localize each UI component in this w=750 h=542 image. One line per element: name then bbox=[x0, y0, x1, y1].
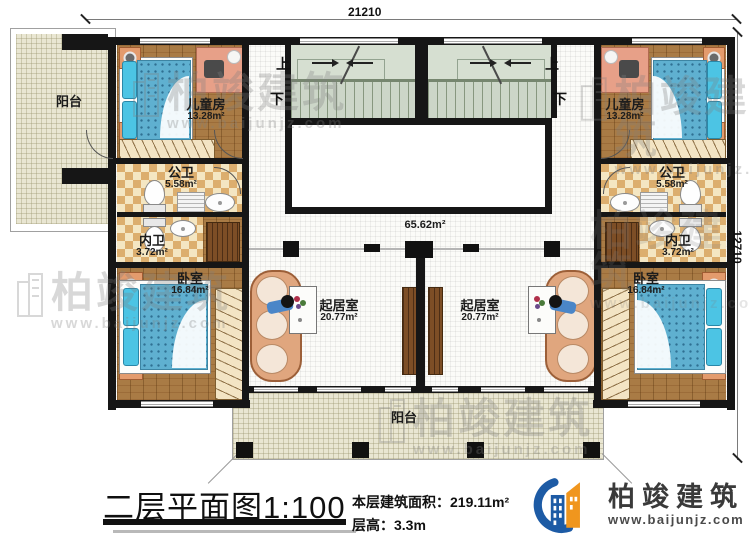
window bbox=[628, 401, 700, 407]
toilet bbox=[144, 180, 165, 206]
room-label-living-left: 起居室 20.77m² bbox=[319, 299, 358, 324]
room-label-inner-bath-right: 内卫 3.72m² bbox=[662, 234, 694, 259]
room-name: 儿童房 bbox=[186, 98, 225, 112]
room-area: 20.77m² bbox=[460, 313, 499, 324]
room-name: 内卫 bbox=[662, 234, 694, 248]
perspective-line bbox=[208, 453, 238, 483]
sofa-cushion bbox=[557, 344, 589, 374]
floor-plan-canvas: 上 下 上 下 bbox=[0, 0, 750, 542]
person-head bbox=[549, 295, 562, 308]
stair-treads bbox=[291, 82, 415, 118]
wardrobe bbox=[119, 139, 215, 159]
desk-lamp bbox=[604, 50, 618, 64]
sink bbox=[610, 193, 640, 212]
wall-stub bbox=[62, 168, 108, 184]
company-logo: 柏竣建筑 www.baijunjz.com bbox=[518, 474, 744, 536]
wall-right-corridor bbox=[594, 45, 601, 400]
room-label-public-bath-left: 公卫 5.58m² bbox=[165, 166, 197, 191]
window bbox=[632, 38, 702, 44]
window bbox=[300, 38, 398, 44]
sofa-cushion bbox=[557, 310, 589, 340]
room-name: 儿童房 bbox=[605, 98, 644, 112]
room-name: 阳台 bbox=[391, 411, 417, 425]
hall-area-value: 65.62m² bbox=[405, 220, 446, 232]
room-area: 16.84m² bbox=[627, 286, 664, 297]
room-label-balcony-bottom: 阳台 bbox=[391, 411, 417, 425]
room-area: 3.72m² bbox=[136, 248, 168, 259]
window bbox=[385, 387, 411, 392]
sink bbox=[205, 193, 235, 212]
pillow bbox=[706, 328, 722, 366]
room-label-inner-bath-left: 内卫 3.72m² bbox=[136, 234, 168, 259]
column bbox=[236, 442, 253, 458]
door-panel-left bbox=[402, 287, 417, 375]
shower-unit bbox=[177, 192, 205, 213]
pillow bbox=[123, 328, 139, 366]
desk-lamp bbox=[227, 50, 241, 64]
room-name: 起居室 bbox=[460, 299, 499, 313]
pillow bbox=[123, 288, 139, 326]
hall-area-label: 65.62m² bbox=[405, 220, 446, 232]
window bbox=[140, 38, 210, 44]
room-label-living-right: 起居室 20.77m² bbox=[460, 299, 499, 324]
wall-stair-center bbox=[415, 45, 428, 118]
computer-monitor bbox=[619, 60, 639, 78]
room-area: 20.77m² bbox=[319, 313, 358, 324]
title-underline-shadow bbox=[113, 530, 356, 533]
room-area: 5.58m² bbox=[165, 180, 197, 191]
stair-arrow-head bbox=[490, 59, 497, 67]
stair-up-label-right: 上 bbox=[545, 54, 559, 74]
room-area: 3.72m² bbox=[662, 248, 694, 259]
pillow bbox=[122, 61, 137, 99]
stair-down-label-left: 下 bbox=[270, 89, 284, 109]
wall-children-left-bottom bbox=[108, 158, 249, 164]
stair-arrow bbox=[312, 62, 332, 64]
room-label-bedroom-right: 卧室 16.84m² bbox=[627, 272, 664, 297]
wall-bath-divider-left bbox=[117, 212, 242, 217]
room-area: 13.28m² bbox=[186, 112, 225, 123]
wardrobe bbox=[630, 139, 726, 159]
room-label-bedroom-left: 卧室 16.84m² bbox=[171, 272, 208, 297]
table-item bbox=[537, 318, 541, 322]
wall-stub bbox=[62, 34, 108, 50]
person-head bbox=[281, 295, 294, 308]
table-item bbox=[298, 318, 302, 322]
room-label-public-bath-right: 公卫 5.58m² bbox=[656, 166, 688, 191]
computer-monitor bbox=[204, 60, 224, 78]
stair-treads bbox=[428, 82, 551, 118]
stair-arrow bbox=[353, 62, 373, 64]
room-name: 内卫 bbox=[136, 234, 168, 248]
room-name: 公卫 bbox=[165, 166, 197, 180]
wall-living-divider bbox=[416, 249, 425, 386]
shower-unit bbox=[640, 192, 668, 213]
stair-down-label-right: 下 bbox=[553, 89, 567, 109]
plant bbox=[294, 296, 300, 302]
stair-arrow-head bbox=[346, 59, 353, 67]
pillow bbox=[707, 101, 722, 139]
column bbox=[463, 244, 479, 252]
door-panel-right bbox=[428, 287, 443, 375]
floor-height-text: 层高：3.3m bbox=[352, 515, 426, 535]
logo-company-name: 柏竣建筑 bbox=[608, 483, 744, 511]
room-label-children-right: 儿童房 13.28m² bbox=[605, 98, 644, 123]
wall-living-bottom bbox=[249, 386, 594, 393]
stair-arrow-head bbox=[504, 59, 511, 67]
floor-area-text: 本层建筑面积：219.11m² bbox=[352, 492, 509, 512]
floor-area-label: 本层建筑面积： bbox=[352, 494, 450, 510]
watermark-building-icon bbox=[16, 272, 44, 318]
balcony-bottom-floor bbox=[232, 390, 604, 460]
door-panel bbox=[605, 222, 639, 262]
window bbox=[481, 387, 525, 392]
wardrobe bbox=[602, 288, 630, 400]
balcony-top-left-floor bbox=[16, 34, 108, 224]
room-label-children-left: 儿童房 13.28m² bbox=[186, 98, 225, 123]
side-table bbox=[289, 286, 317, 334]
window bbox=[432, 387, 458, 392]
wall-left bbox=[108, 37, 116, 410]
column bbox=[364, 244, 380, 252]
stair-up-label-left: 上 bbox=[276, 54, 290, 74]
room-name: 阳台 bbox=[56, 95, 82, 109]
wall-left-corridor bbox=[242, 45, 249, 400]
logo-mark-icon bbox=[518, 474, 600, 536]
column bbox=[467, 442, 484, 458]
window bbox=[254, 387, 298, 392]
logo-website: www.baijunjz.com bbox=[608, 512, 744, 527]
window bbox=[317, 387, 361, 392]
plant bbox=[535, 304, 540, 309]
wall-children-right-bottom bbox=[594, 158, 735, 164]
pillow bbox=[707, 61, 722, 99]
room-area: 5.58m² bbox=[656, 180, 688, 191]
plant bbox=[296, 304, 301, 309]
sofa-cushion bbox=[256, 344, 288, 374]
pillow bbox=[122, 101, 137, 139]
floor-area-value: 219.11m² bbox=[450, 494, 509, 510]
stair-arrow-head bbox=[332, 59, 339, 67]
side-table bbox=[528, 286, 556, 334]
room-area: 13.28m² bbox=[605, 112, 644, 123]
stair-arrow bbox=[470, 62, 490, 64]
dimension-line-top bbox=[85, 19, 737, 20]
column bbox=[352, 442, 369, 458]
title-underline bbox=[103, 519, 346, 525]
wall-bath-divider-right bbox=[601, 212, 726, 217]
sink bbox=[170, 220, 196, 237]
wall-bedroom-right-top bbox=[594, 262, 735, 268]
door-panel bbox=[206, 222, 240, 262]
column bbox=[583, 442, 600, 458]
dimension-right-value: 12710 bbox=[730, 217, 744, 277]
room-label-balcony-top: 阳台 bbox=[56, 95, 82, 109]
dimension-top-value: 21210 bbox=[348, 5, 381, 19]
room-name: 起居室 bbox=[319, 299, 358, 313]
column bbox=[544, 241, 560, 257]
window bbox=[141, 401, 213, 407]
pillow bbox=[706, 288, 722, 326]
wardrobe bbox=[215, 288, 243, 400]
column bbox=[405, 241, 433, 258]
window bbox=[544, 387, 588, 392]
staircase-right bbox=[428, 45, 551, 118]
column bbox=[283, 241, 299, 257]
sofa-cushion bbox=[256, 310, 288, 340]
window bbox=[444, 38, 542, 44]
stair-arrow bbox=[511, 62, 531, 64]
room-name: 卧室 bbox=[627, 272, 664, 286]
wall-bedroom-left-top bbox=[108, 262, 249, 268]
room-name: 公卫 bbox=[656, 166, 688, 180]
central-void bbox=[285, 118, 552, 214]
room-name: 卧室 bbox=[171, 272, 208, 286]
room-area: 16.84m² bbox=[171, 286, 208, 297]
